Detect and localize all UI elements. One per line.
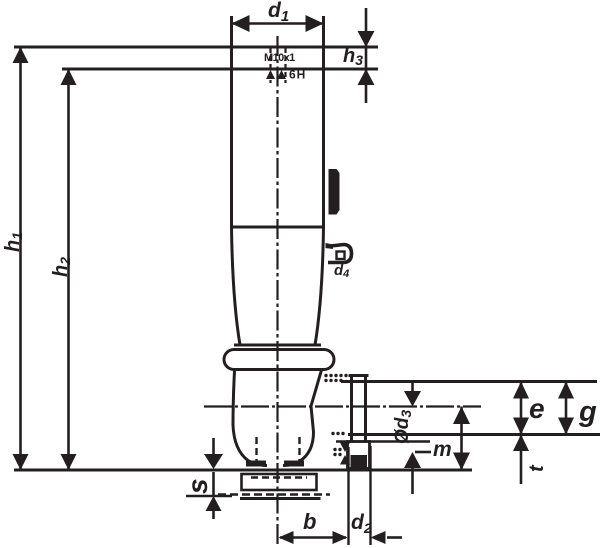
svg-text:M10x1: M10x1 [264, 52, 295, 64]
svg-text:b: b [303, 509, 316, 534]
svg-text:g: g [578, 396, 597, 428]
svg-text:m: m [433, 438, 452, 461]
svg-text:6H: 6H [289, 68, 306, 82]
svg-text:e: e [529, 393, 545, 424]
svg-text:s: s [182, 478, 213, 494]
